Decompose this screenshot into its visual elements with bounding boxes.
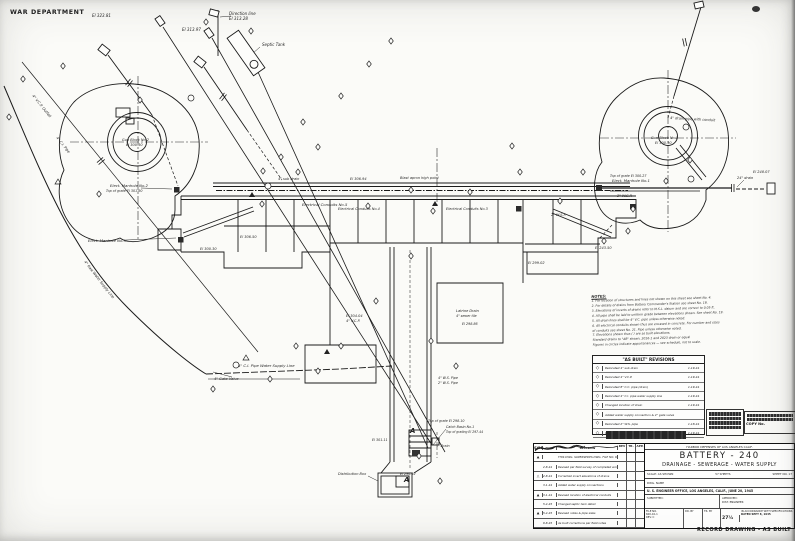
name-row: DWG. NAME <box>645 479 794 488</box>
notes-block: NOTES: 1. For location of structures and… <box>591 289 794 348</box>
revision-row: ◇Changed location of drain1-19-44 <box>593 401 704 410</box>
callout: 4" W.S. Pipe <box>438 376 458 380</box>
callout: Gun Block No.2 <box>122 138 150 142</box>
callout: El 300.30 <box>126 143 143 147</box>
revision-text: Relocated 2" W.S. pipe <box>603 422 688 426</box>
diamond-icon: ◇ <box>593 412 603 417</box>
header-cell: TR. <box>627 444 636 452</box>
approved-label: APPROVED: <box>722 496 738 500</box>
callout: El 306.94 <box>350 177 367 181</box>
callout: 4" V.C.P. <box>346 319 361 323</box>
title-block-bottom-row: FILE NO. 600-10-1 REV. C DR. BY TR. BY 2… <box>645 509 794 529</box>
callout: 2" W.S. Pipe <box>438 381 458 385</box>
callout: 4" Drain <box>436 444 450 448</box>
scan-edge-shadow <box>791 0 795 541</box>
callout: 4" sewer tile <box>456 314 477 318</box>
revision-date: 1-19-44 <box>688 366 704 370</box>
revision-date: 1-19-44 <box>688 385 704 389</box>
callout: Septic Tank <box>262 42 286 47</box>
callout: 4" V.C.P. Outfall <box>31 94 52 118</box>
callout: El 299.02 <box>528 261 545 265</box>
dr-by-cell: DR. BY <box>684 509 703 529</box>
left-emplacement-outline <box>59 84 199 242</box>
callout: El 323.81 <box>92 13 111 18</box>
callout: Top of grating El 297.44 <box>446 430 483 434</box>
record-drawing-note: RECORD DRAWING - AS BUILT <box>697 527 791 533</box>
revision-row: ◇Relocated 4" C.I. pipe water supply lin… <box>593 392 704 401</box>
approved-cell: APPROVED: DIST. ENGINEER <box>720 495 794 508</box>
diamond-icon: ◇ <box>593 431 603 436</box>
as-built-revisions-box: "AS BUILT" REVISIONS ◇Relocated 4" sub d… <box>592 355 705 435</box>
septic-tank-shape <box>227 30 265 76</box>
revision-date: 1-19-44 <box>688 375 704 379</box>
callout: 2" W.S.P. <box>551 213 567 217</box>
stamp-text-line <box>709 417 741 421</box>
revision-table-row: △2-8-44Corrected invert elevations of dr… <box>534 472 644 481</box>
scan-blemish <box>752 6 760 12</box>
stamp-text-line <box>709 421 741 425</box>
callout: Electrical Conduits No.3 <box>446 207 488 211</box>
callout: El 313.28 <box>229 16 248 21</box>
revision-row: ◇Relocated 8" C.C. pipe (drain)1-19-44 <box>593 383 704 392</box>
callout: El 298.86 <box>462 322 478 326</box>
revision-text: Relocated 8" C.C. pipe (drain) <box>603 385 688 389</box>
approval-stamp <box>706 409 744 436</box>
revision-table-row: ▲3-1-44Revised location of electrical co… <box>534 491 644 500</box>
sheet-no-label: SHEET NO. 17 <box>772 472 792 476</box>
revision-table-row: ▲5-4-45Revised notes & pipe sizes <box>534 509 644 518</box>
revision-table: SYM DATE REVISION REV TR. APP. ▲THIS DWG… <box>534 444 645 528</box>
callout: Distribution Box <box>338 472 367 476</box>
rev-label: REV. C <box>646 516 682 519</box>
callout: 4" Gate Valve <box>214 377 239 381</box>
callout: Elect. Manhole No.1 <box>612 178 650 183</box>
callout: Blast apron high point <box>400 176 439 180</box>
diamond-icon: ◇ <box>593 421 603 426</box>
revision-date: 1-18-44 <box>688 422 704 426</box>
diamond-icon: ◇ <box>593 394 603 399</box>
callout: Gun Block No.1 <box>651 136 678 140</box>
copy-stamp: COPY No. <box>744 411 795 434</box>
revision-triangles <box>55 179 438 360</box>
title-block: SYM DATE REVISION REV TR. APP. ▲THIS DWG… <box>533 443 795 529</box>
callout: El 243.50 <box>595 246 612 250</box>
callout: 2" W.S.P. <box>617 194 633 198</box>
office-line: U. S. ENGINEER OFFICE, LOS ANGELES, CALI… <box>645 488 794 495</box>
revision-text: Relocated 4" sub drain <box>603 366 688 370</box>
diamond-icon: ◇ <box>593 403 603 408</box>
revision-text: Relocated 4" V.C.P. <box>603 375 688 379</box>
drawing-subtitle: DRAINAGE - SEWERAGE - WATER SUPPLY <box>645 461 794 471</box>
callout: El 300.30 <box>200 247 217 251</box>
tick-marks <box>97 38 734 192</box>
callout: Latrine Drain <box>456 309 479 313</box>
right-emplacement-outline <box>595 78 729 229</box>
diamond-icon: ◇ <box>593 384 603 389</box>
header-cell: APP. <box>636 444 644 452</box>
redaction-strip <box>606 431 686 439</box>
submitted-label: SUBMITTED: <box>647 496 664 500</box>
stamp-text-line <box>747 414 793 417</box>
submitted-cell: SUBMITTED: <box>645 495 720 508</box>
dated-line: DATED SEPT 8, 1945 <box>741 513 793 516</box>
title-block-main: HARBOR DEFENSES OF LOS ANGELES CALIF. BA… <box>645 444 794 528</box>
revision-table-row: 3-1-44Added water supply connections <box>534 481 644 490</box>
stamp-text-line <box>747 418 793 421</box>
section-letter: A <box>409 427 415 435</box>
callout: 24" drain <box>737 176 753 180</box>
revision-row: ◇Added water supply connection & 4" gate… <box>593 410 704 419</box>
revision-date: 1-19-44 <box>688 394 704 398</box>
stamp-text-line <box>709 412 741 416</box>
section-letter: A <box>403 476 409 484</box>
callout: 4" sub drain <box>278 177 299 181</box>
callout: 4" C.I. Pipe Water Supply Line <box>238 363 295 368</box>
signature-row: SUBMITTED: APPROVED: DIST. ENGINEER <box>645 495 794 509</box>
revision-table-row: 2-8-44Revised per field survey of comple… <box>534 462 644 471</box>
file-no-cell: FILE NO. 600-10-1 REV. C <box>645 509 684 529</box>
diamond-icon: ◇ <box>593 366 603 371</box>
callout: El 306.50 <box>240 235 257 239</box>
revision-row: ◇Relocated 4" sub drain1-19-44 <box>593 364 704 373</box>
callout: Top of grate El 298.10 <box>428 419 464 423</box>
tr-by-cell: TR. BY <box>703 509 721 529</box>
revision-text: Relocated 4" C.I. pipe water supply line <box>603 394 688 398</box>
revision-table-row: ▲THIS DWG. SUPERSEDES DWG. FILE NO. 600-… <box>534 453 644 462</box>
revision-text: Added water supply connection & 4" gate … <box>603 413 688 417</box>
sheets-label: 57 SHEETS <box>715 472 730 476</box>
reference-diamonds <box>7 19 693 484</box>
scale-row: SCALE: AS SHOWN 57 SHEETS SHEET NO. 17 <box>645 471 794 479</box>
revision-date: 1-19-44 <box>688 431 704 435</box>
callout: Elect. Manhole No.3 <box>88 238 126 243</box>
callout: Electrical Conduits No.4 <box>338 207 380 211</box>
revision-text: Changed location of drain <box>603 403 688 407</box>
callout: El 313.97 <box>182 27 201 32</box>
callout: Elect. Manhole No.2 <box>110 183 148 188</box>
as-built-revisions-title: "AS BUILT" REVISIONS <box>593 356 704 364</box>
drawing-sheet: Direction line El 313.28 Septic Tank El … <box>0 0 795 541</box>
callout: 4" drain pipe with conduit <box>670 116 716 122</box>
revision-table-row: 5-4-45Changed septic tank detail <box>534 500 644 509</box>
callout: Catch Basin No.1 <box>446 425 474 429</box>
dwg-name-label: DWG. NAME <box>647 481 664 485</box>
callout: Top of grate El 301.80 <box>106 189 142 193</box>
callout: El 304.04 <box>346 314 363 318</box>
scale-label: SCALE: AS SHOWN <box>647 472 673 476</box>
callout: 4" C.I. Pipe <box>55 136 71 154</box>
revision-date: 1-19-44 <box>688 403 704 407</box>
revision-row: ◇Relocated 2" W.S. pipe1-18-44 <box>593 420 704 429</box>
revision-table-row: 9-8-45As built corrections per field not… <box>534 519 644 528</box>
number-cell: 27½ <box>721 515 740 522</box>
callout: El 300.30 <box>655 141 672 145</box>
signature <box>534 444 586 453</box>
battery-title: BATTERY - 240 <box>645 450 794 461</box>
approved-title: DIST. ENGINEER <box>722 500 792 504</box>
spec-cell: IN ACCORDANCE WITH SPECIFICATIONS DATED … <box>740 509 794 529</box>
callout: 4" Raw Water Supply Line <box>83 260 115 300</box>
callout: El 301.11 <box>372 438 388 442</box>
copy-no-label: COPY No. <box>746 422 794 426</box>
diamond-icon: ◇ <box>593 375 603 380</box>
war-department-label: WAR DEPARTMENT <box>10 9 84 16</box>
stamp-text-line <box>709 426 741 430</box>
callout: El 248.07 <box>753 170 770 174</box>
revision-row: ◇Relocated 4" V.C.P.1-19-44 <box>593 373 704 382</box>
